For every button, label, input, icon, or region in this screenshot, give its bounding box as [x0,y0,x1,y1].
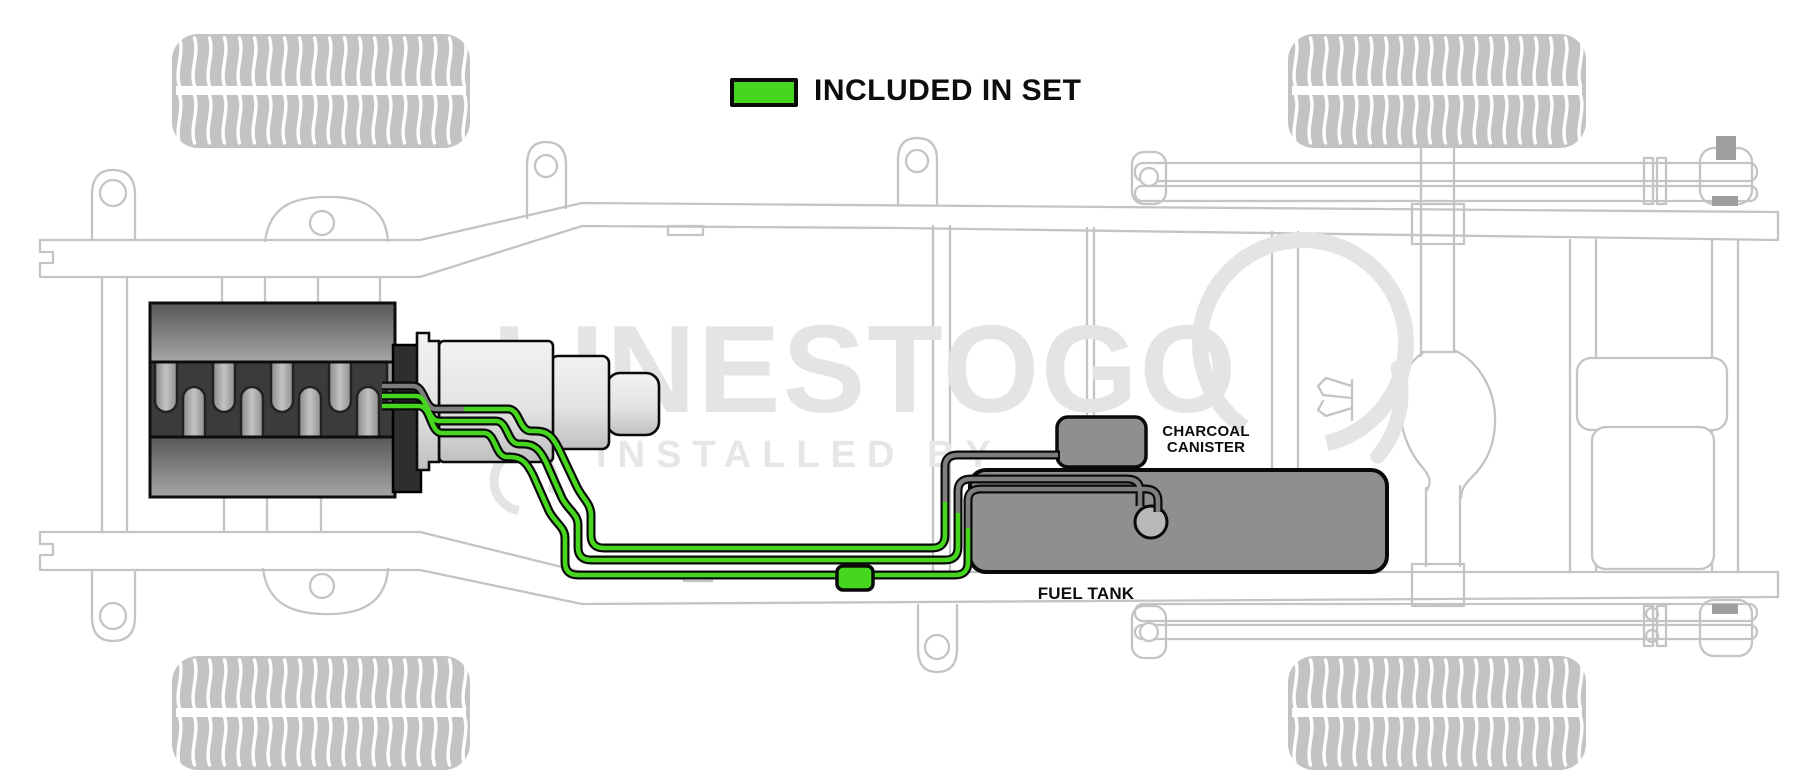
differential [1399,350,1495,498]
fuel-line-diagram: LINESTOGO INSTALLED BY [0,0,1800,784]
front-crossmember [102,277,127,532]
legend-swatch [730,78,798,107]
tire-front-left [172,34,470,148]
driveshaft-yoke [1318,378,1352,420]
charcoal-canister-label: CHARCOAL CANISTER [1123,424,1289,455]
tow-hook-icon [40,532,62,570]
body-mount [527,142,566,218]
engine-valve-cover [150,437,395,497]
tire-rear-right [1288,656,1586,770]
legend-label: INCLUDED IN SET [814,74,1082,108]
spare-tire [1577,358,1727,430]
axle-tube [1421,148,1454,356]
engine [150,303,421,497]
tow-hook-icon [40,240,62,277]
leaf-spring [1135,163,1757,181]
tire-rear-left [1288,34,1586,148]
transmission-tail [607,373,659,435]
transmission-mid [551,356,609,449]
charcoal-canister-label-line1: CHARCOAL [1123,424,1289,440]
fuel-tank-label: FUEL TANK [1005,584,1167,604]
tire-front-right [172,656,470,770]
chassis-drawing: LINESTOGO INSTALLED BY [0,0,1800,784]
engine-valve-cover [150,303,395,362]
charcoal-canister-label-line2: CANISTER [1123,440,1289,456]
fuel-line-connector [837,566,873,590]
